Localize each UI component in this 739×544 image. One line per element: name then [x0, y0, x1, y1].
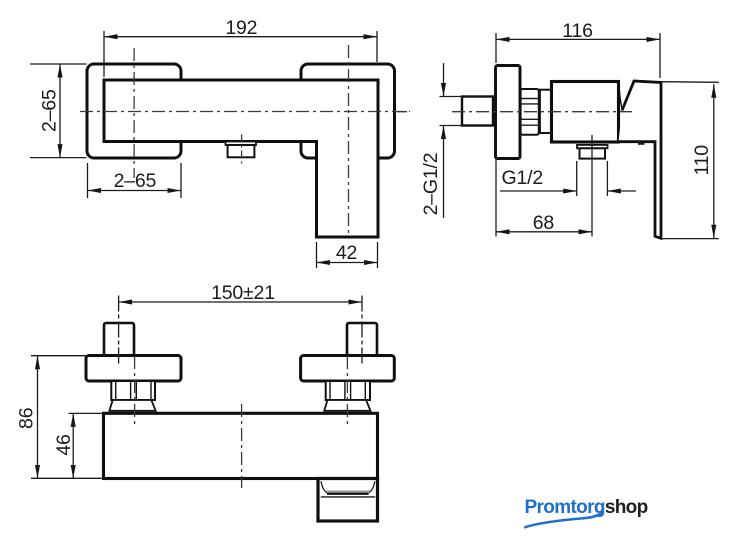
svg-text:2–65: 2–65 [114, 170, 157, 192]
svg-text:110: 110 [691, 145, 713, 176]
svg-text:42: 42 [336, 242, 357, 264]
svg-text:Promtorgshop: Promtorgshop [525, 497, 648, 518]
svg-text:116: 116 [562, 20, 593, 42]
svg-text:G1/2: G1/2 [502, 167, 543, 189]
svg-text:150±21: 150±21 [211, 282, 275, 304]
svg-text:86: 86 [15, 408, 37, 429]
svg-text:2–G1/2: 2–G1/2 [420, 153, 442, 216]
svg-text:68: 68 [533, 212, 554, 234]
svg-text:192: 192 [225, 17, 257, 39]
svg-text:2–65: 2–65 [39, 89, 61, 132]
svg-text:46: 46 [53, 434, 75, 455]
